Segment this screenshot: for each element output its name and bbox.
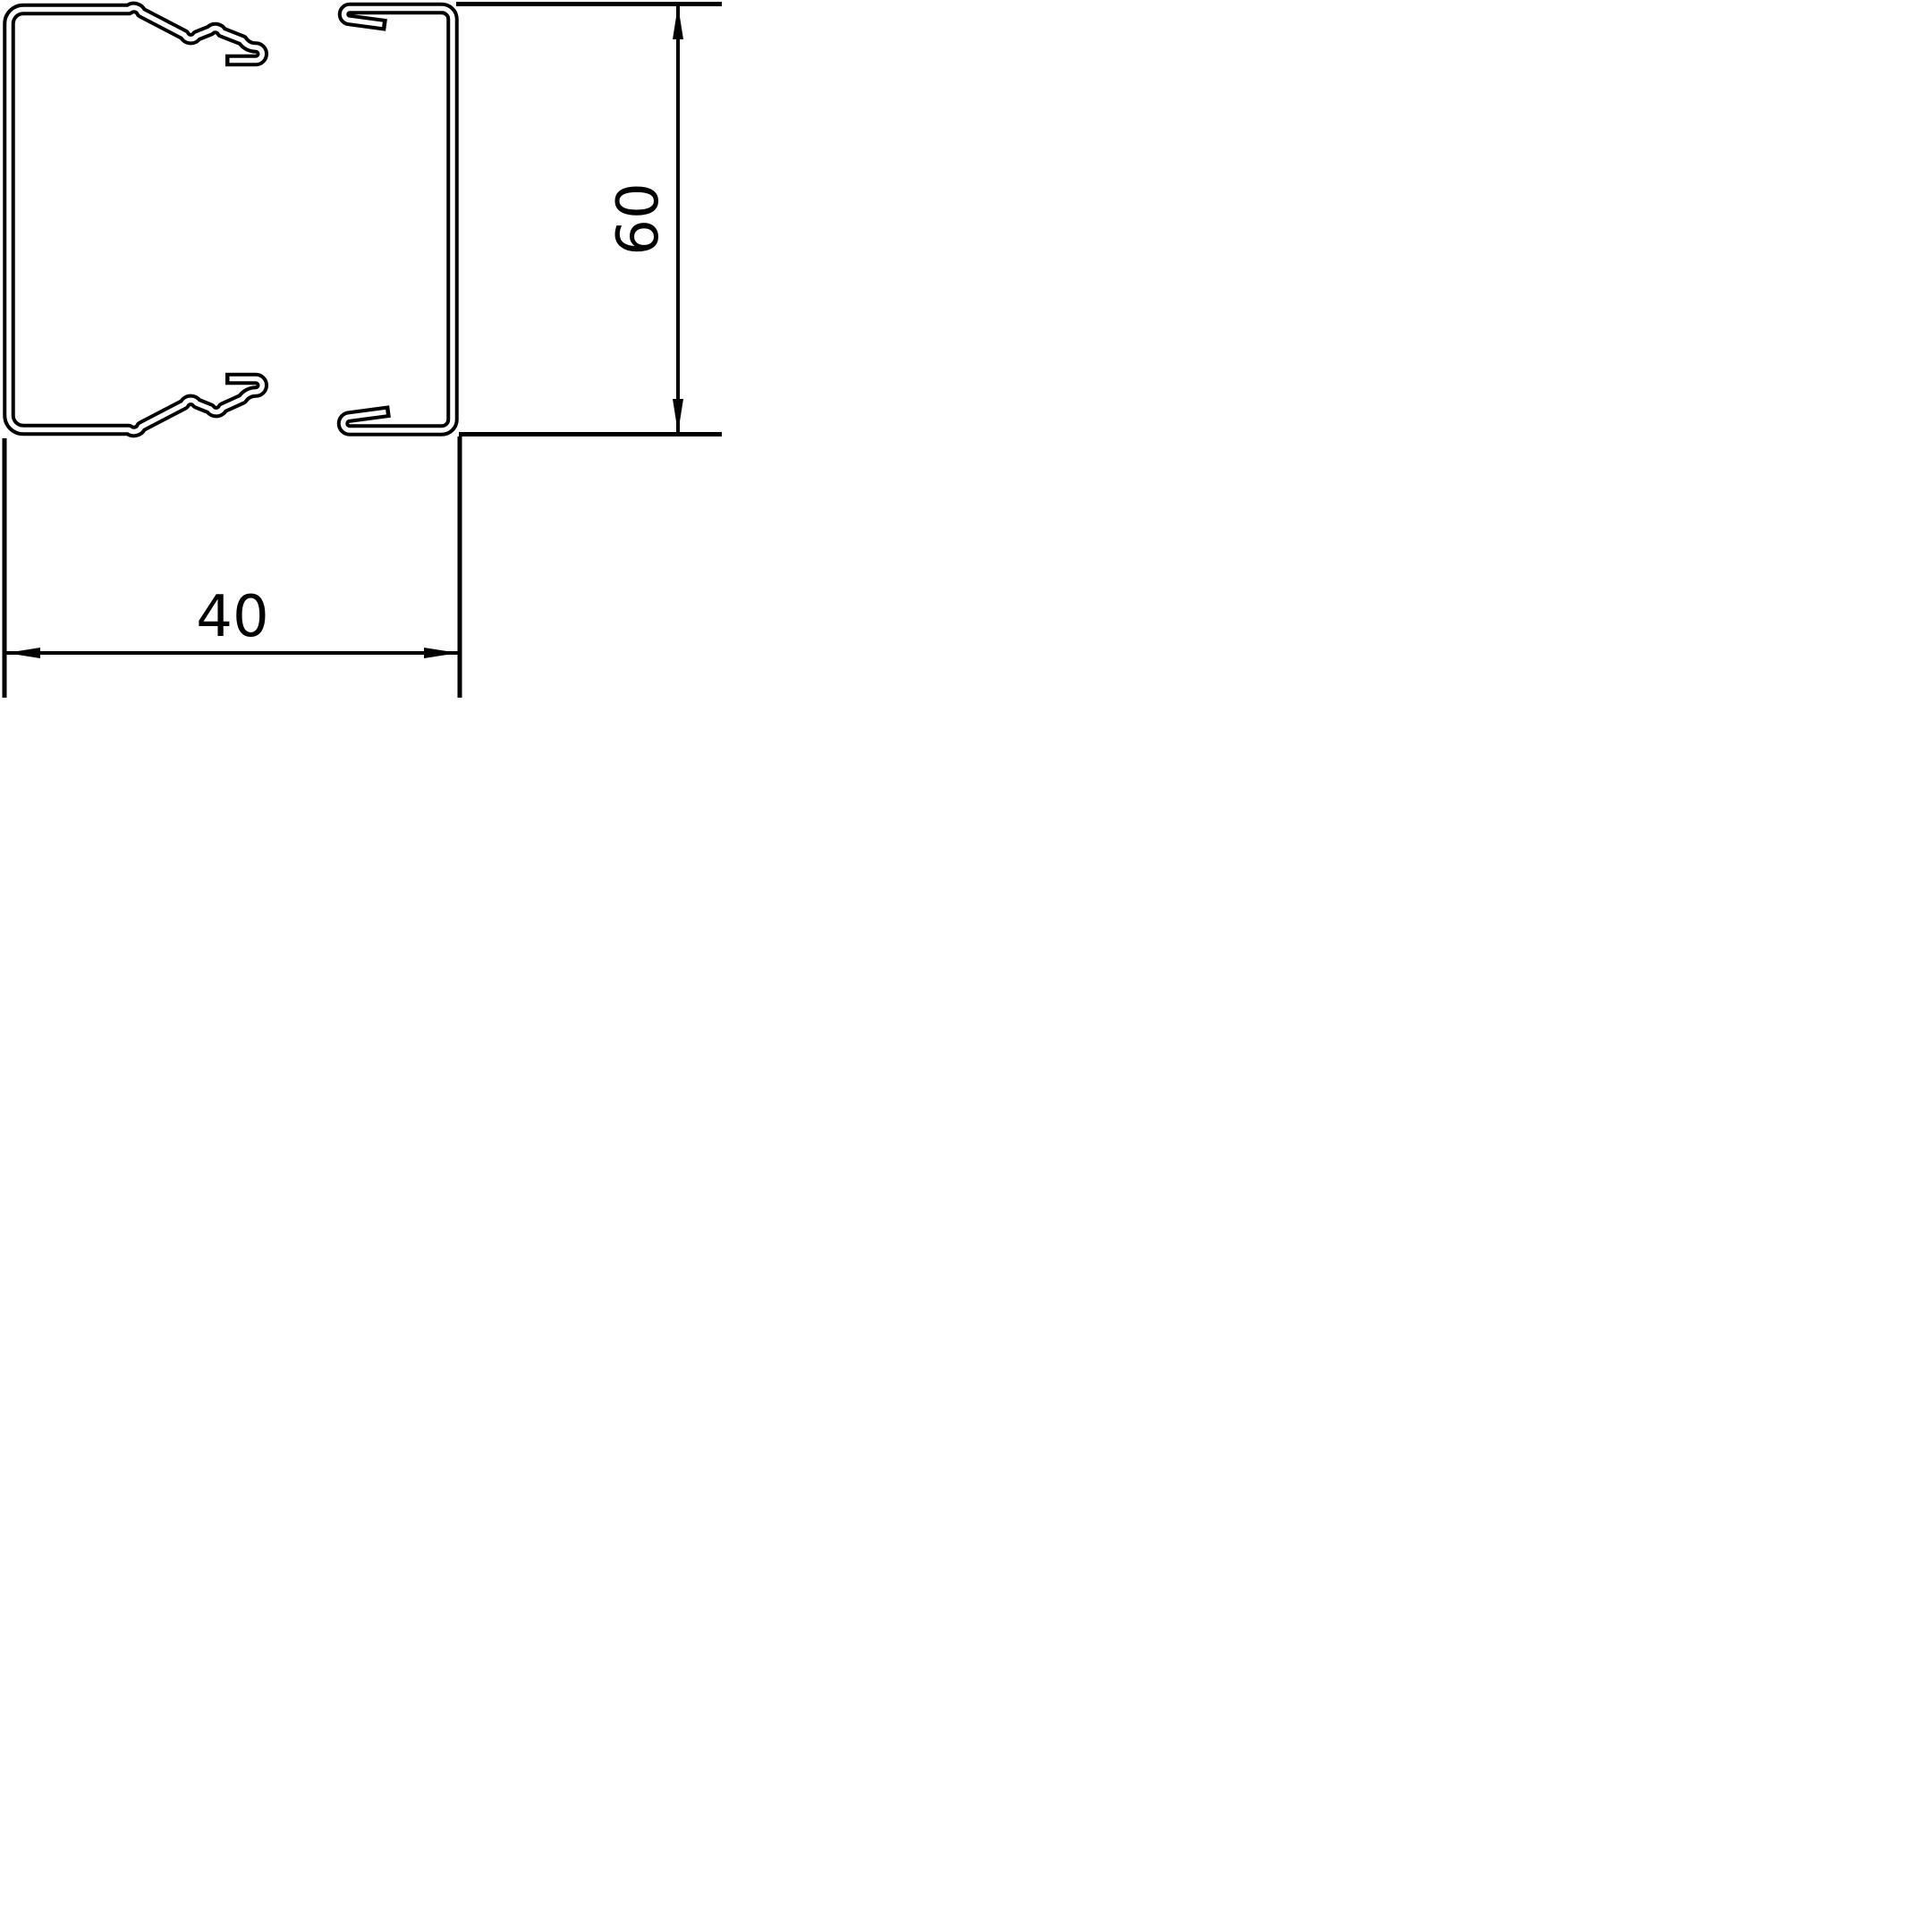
height-dimension: 60 xyxy=(456,4,722,435)
height-dimension-label: 60 xyxy=(606,182,672,255)
height-arrow-down xyxy=(673,399,683,433)
technical-drawing-canvas: 60 40 xyxy=(0,0,1932,1932)
width-dimension-label: 40 xyxy=(196,584,268,650)
duct-body-inner-contour xyxy=(9,7,262,431)
height-arrow-up xyxy=(673,5,683,39)
duct-body-outer-contour xyxy=(9,7,262,431)
width-dimension: 40 xyxy=(4,436,460,698)
width-arrow-left xyxy=(6,648,40,658)
duct-cover-inner-contour xyxy=(343,9,453,431)
duct-cover-outline xyxy=(343,9,453,431)
duct-cover-outer-contour xyxy=(343,9,453,431)
width-arrow-right xyxy=(424,648,458,658)
duct-body-outline xyxy=(9,7,262,431)
